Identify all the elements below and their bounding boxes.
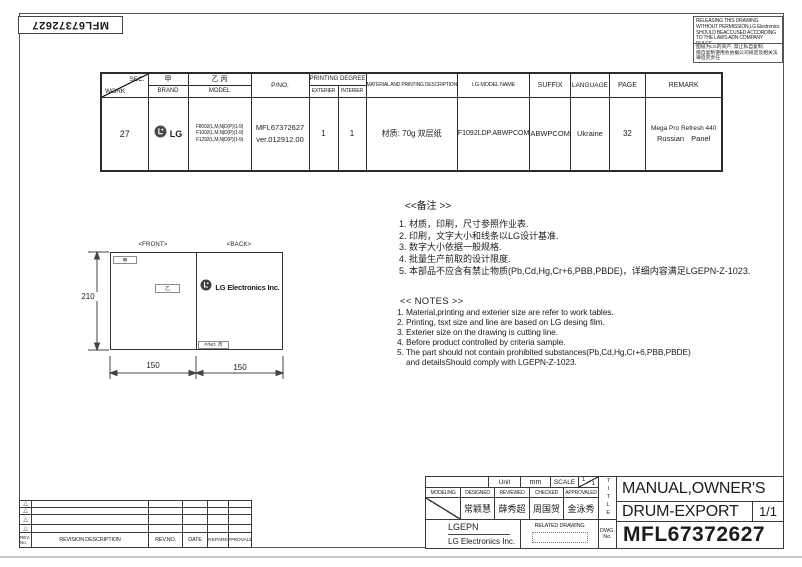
header-material: MATERIAL AND PRINTING DESCRIPTION <box>366 73 457 97</box>
notes-cn-item: 1. 材质，印刷，尺寸参照作业表. <box>399 219 750 231</box>
signature-modeling <box>425 497 461 520</box>
notes-cn-title: <<备注 >> <box>405 197 451 212</box>
doc-title-line1: MANUAL,OWNER'S <box>616 476 784 502</box>
dwg-label-line2: No. <box>603 534 612 540</box>
related-drawing-cell: RELATED DRAWING <box>520 519 599 549</box>
remark-line-1: Mega Pro Refresh 440 <box>646 125 722 132</box>
company-code: LGEPN <box>448 522 479 532</box>
header-language: LANGUAGE <box>570 73 609 97</box>
cell-page-value: 32 <box>609 97 645 171</box>
drawing-number: MFL67372627 <box>616 521 784 549</box>
header-printing-degree: PRINTING DEGREE <box>309 73 366 85</box>
signature-reviewed: 薛秀超 <box>494 497 530 520</box>
notes-cn-item: 5. 本部品不应含有禁止物质(Pb,Cd,Hg,Cr+6,PBB,PBDE)，详… <box>399 266 750 278</box>
pno-number: MFL67372627 <box>252 123 309 132</box>
revision-header-date: DATE <box>182 532 208 548</box>
header-page: PAGE <box>609 73 645 97</box>
model-line-2: F1092(L,M,N|D(P)(1-9) <box>189 130 251 137</box>
notes-cn-item: 2. 印刷，文字大小和线条以LG设计基准. <box>399 231 750 243</box>
cell-remark: Mega Pro Refresh 440 Russian Panel <box>645 97 722 171</box>
model-line-3: F1292(L,M,N|D(P)(1-9) <box>189 137 251 144</box>
revision-triangle-icon: △ <box>23 526 28 532</box>
notes-cn-item: 3. 数字大小依据一般规格. <box>399 242 750 254</box>
notes-en-title: << NOTES >> <box>400 296 464 307</box>
dim-width-right-value: 150 <box>225 363 255 372</box>
header-pno: P/NO. <box>251 73 309 97</box>
pno-version: ver.012912.00 <box>252 135 309 144</box>
header-brand: BRAND <box>148 85 188 97</box>
company-divider <box>448 534 510 535</box>
page-bottom-edge <box>0 556 802 558</box>
remark-line-2: Russian Panel <box>646 134 722 143</box>
cell-material-value: 材质: 70g 双层纸 <box>366 97 457 171</box>
cell-language-value: Ukraine <box>570 97 609 171</box>
notes-en-item-continuation: and detailsShould comply with LGEPN-Z-10… <box>397 358 691 368</box>
cell-models: F8092(L,M,N|D(P)(1-9) F1092(L,M,N|D(P)(1… <box>188 97 251 171</box>
header-yi-bing: 乙 丙 <box>188 73 251 85</box>
cell-pno: MFL67372627 ver.012912.00 <box>251 97 309 171</box>
cell-suffix-value: ABWPCOM <box>530 97 571 171</box>
sheet-number: 1/1 <box>752 501 784 522</box>
dim-height-value: 210 <box>78 292 98 301</box>
header-exterier: EXTERIER <box>309 85 338 97</box>
related-drawing-label: RELATED DRAWING <box>535 523 585 529</box>
cell-interier-value: 1 <box>338 97 366 171</box>
company-name: LG Electronics Inc. <box>448 537 515 546</box>
signature-approvaled: 金泳秀 <box>563 497 599 520</box>
revision-header-approved: APPROVALED <box>228 532 252 548</box>
title-vertical-cell: TITLE <box>598 476 617 520</box>
drawing-sheet: MFL67372627 RELEASING THIS DRAWING WITHO… <box>0 0 802 567</box>
spec-table: SEC. WORK 甲 乙 丙 P/NO. PRINTING DEGREE MA… <box>100 72 723 172</box>
title-vertical-label: TITLE <box>605 478 611 518</box>
rotated-part-number-box: MFL67372627 <box>18 16 123 34</box>
revision-header-prepared: PREPARED <box>207 532 229 548</box>
sec-work-header: SEC. WORK <box>101 73 148 97</box>
header-model: MODEL <box>188 85 251 97</box>
release-warning-box: RELEASING THIS DRAWING WITHOUT PERMISSIO… <box>693 16 783 63</box>
warning-text-en: RELEASING THIS DRAWING WITHOUT PERMISSIO… <box>694 17 782 44</box>
model-line-1: F8092(L,M,N|D(P)(1-9) <box>189 124 251 131</box>
warning-text-cn: 图纸为LG的资产, 禁止私自复制. 擅自复制使用会依据公司规定及相关法律追究责任 <box>694 44 782 63</box>
dwg-no-label-cell: DWG, No. <box>598 519 617 549</box>
scale-numerator: 1 <box>582 477 585 483</box>
dimension-lines <box>75 240 295 385</box>
brand-lg-text: LG <box>170 129 183 139</box>
header-interier: INTERIER <box>338 85 366 97</box>
signature-designed: 常颖慧 <box>460 497 495 520</box>
revision-header-description: REVISION DESCRIPTION <box>31 532 149 548</box>
work-label: WORK <box>105 88 125 95</box>
header-suffix: SUFFIX <box>530 73 571 97</box>
warning-cn-line2: 擅自复制使用会依据公司规定及相关法律追究责任 <box>696 51 780 62</box>
header-lg-model-name: LG MODEL NAME <box>457 73 529 97</box>
revision-triangle-icon: △ <box>23 517 28 523</box>
cell-exterier-value: 1 <box>309 97 338 171</box>
signature-checked: 周国贺 <box>529 497 564 520</box>
cell-brand: LG <box>148 97 188 171</box>
header-remark: REMARK <box>645 73 722 97</box>
notes-cn-item: 4. 批量生产前取的设计限度. <box>399 254 750 266</box>
revision-header-revno: REV.NO. <box>148 532 183 548</box>
notes-en: 1. Material,printing and exterier size a… <box>397 308 691 367</box>
header-jia: 甲 <box>148 73 188 85</box>
cell-work-value: 27 <box>101 97 148 171</box>
dim-width-left-value: 150 <box>138 361 168 370</box>
cell-lg-model-name: F1092LDP.ABWPCOM <box>457 97 529 171</box>
doc-title-line2: DRUM-EXPORT <box>616 501 753 522</box>
lg-logo-icon <box>154 125 167 143</box>
notes-cn: 1. 材质，印刷，尺寸参照作业表. 2. 印刷，文字大小和线条以LG设计基准. … <box>399 219 750 278</box>
related-drawing-box <box>532 532 588 543</box>
company-cell: LGEPN LG Electronics Inc. <box>425 519 521 549</box>
sec-label: SEC. <box>129 76 144 83</box>
rotated-part-number: MFL67372627 <box>32 19 109 31</box>
